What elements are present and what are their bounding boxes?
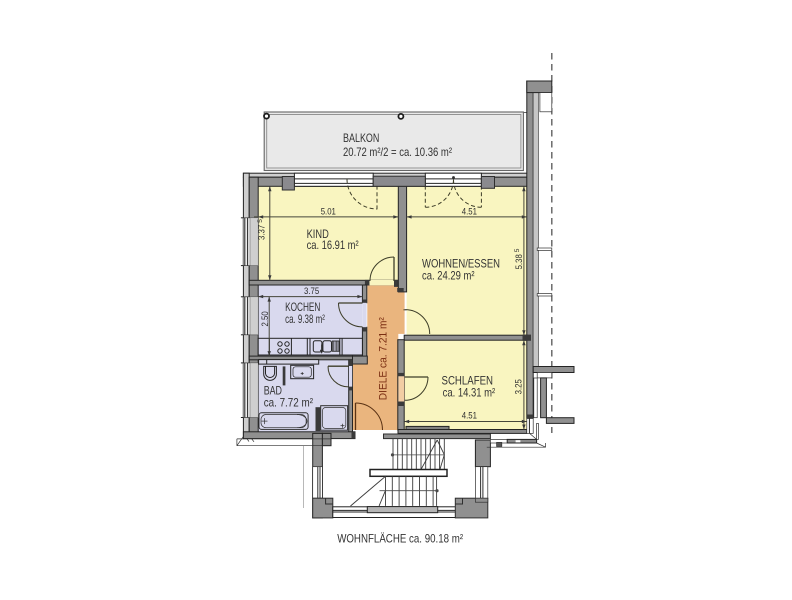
- svg-text:5: 5: [514, 248, 521, 252]
- svg-text:5: 5: [257, 219, 264, 223]
- svg-text:DIELE ca. 7.21 m²: DIELE ca. 7.21 m²: [378, 317, 390, 400]
- svg-text:ca. 7.72 m²: ca. 7.72 m²: [264, 395, 313, 409]
- svg-text:5.38: 5.38: [514, 254, 524, 269]
- svg-text:20.72 m²/2 = ca. 10.36 m²: 20.72 m²/2 = ca. 10.36 m²: [343, 145, 452, 159]
- svg-text:4.51: 4.51: [462, 207, 477, 217]
- svg-text:3.25: 3.25: [514, 379, 524, 394]
- svg-text:4.51: 4.51: [462, 410, 477, 420]
- svg-text:WOHNFLÄCHE ca. 90.18 m²: WOHNFLÄCHE ca. 90.18 m²: [337, 532, 463, 546]
- svg-text:2.50: 2.50: [260, 311, 270, 326]
- svg-text:ca. 14.31 m²: ca. 14.31 m²: [443, 386, 496, 400]
- svg-text:5.01: 5.01: [321, 207, 336, 217]
- svg-text:ca. 9.38 m²: ca. 9.38 m²: [285, 312, 325, 326]
- svg-text:BALKON: BALKON: [343, 131, 379, 145]
- svg-text:3.37: 3.37: [257, 225, 267, 240]
- svg-text:ca. 16.91 m²: ca. 16.91 m²: [307, 238, 359, 252]
- svg-text:ca. 24.29 m²: ca. 24.29 m²: [422, 269, 475, 283]
- svg-text:3.75: 3.75: [304, 286, 319, 296]
